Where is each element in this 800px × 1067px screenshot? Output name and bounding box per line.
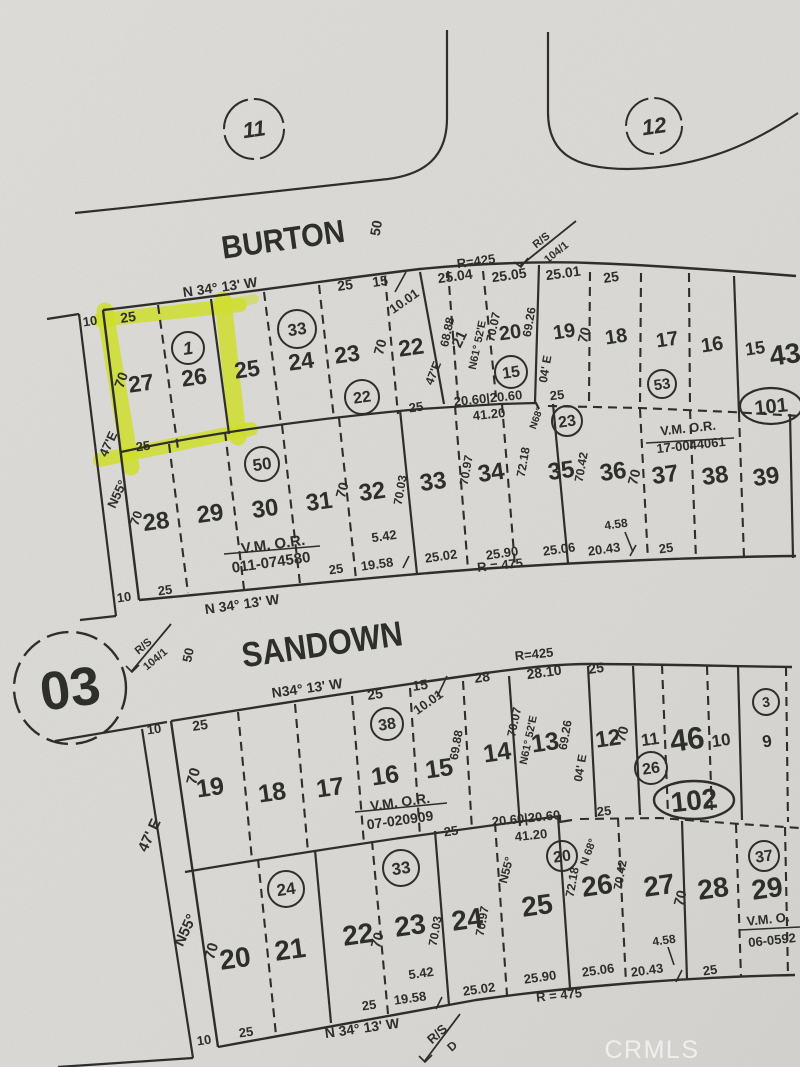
svg-text:37: 37	[650, 460, 680, 490]
svg-text:50: 50	[367, 219, 385, 237]
svg-text:43: 43	[767, 337, 800, 372]
svg-text:25: 25	[596, 803, 612, 819]
svg-text:23: 23	[557, 412, 577, 431]
svg-text:14: 14	[481, 737, 513, 769]
svg-text:22: 22	[397, 332, 426, 361]
svg-text:15: 15	[744, 337, 767, 360]
svg-text:10: 10	[710, 730, 731, 751]
svg-text:25: 25	[443, 823, 459, 840]
svg-text:17: 17	[314, 772, 345, 804]
svg-text:17: 17	[655, 328, 680, 353]
svg-text:32: 32	[357, 477, 387, 507]
svg-text:18: 18	[604, 325, 629, 350]
svg-text:39: 39	[751, 462, 781, 492]
svg-text:50: 50	[251, 454, 272, 475]
svg-text:25: 25	[328, 561, 344, 578]
svg-text:25: 25	[238, 1024, 254, 1041]
svg-text:33: 33	[286, 319, 307, 340]
svg-text:25: 25	[157, 582, 173, 599]
svg-text:31: 31	[304, 487, 334, 517]
svg-text:20: 20	[217, 941, 252, 976]
svg-text:25: 25	[336, 276, 354, 294]
svg-text:16: 16	[700, 333, 725, 358]
svg-text:37: 37	[754, 847, 774, 866]
svg-text:38: 38	[377, 715, 397, 734]
svg-text:10: 10	[116, 589, 132, 606]
svg-text:10: 10	[82, 313, 98, 330]
svg-text:22: 22	[352, 388, 372, 407]
svg-text:16: 16	[369, 760, 400, 792]
svg-text:15: 15	[411, 676, 429, 694]
svg-text:25: 25	[587, 659, 605, 677]
svg-text:25: 25	[191, 716, 209, 734]
svg-text:53: 53	[653, 375, 672, 394]
svg-text:34: 34	[476, 458, 507, 489]
svg-text:11: 11	[640, 729, 660, 750]
svg-text:102: 102	[669, 782, 719, 818]
svg-text:26: 26	[579, 868, 614, 903]
svg-text:23: 23	[392, 908, 427, 943]
svg-text:33: 33	[418, 467, 448, 497]
svg-text:18: 18	[256, 777, 288, 809]
svg-text:11: 11	[241, 115, 267, 143]
svg-text:15: 15	[501, 363, 521, 382]
svg-text:27: 27	[127, 368, 156, 397]
svg-text:24: 24	[275, 879, 297, 901]
svg-text:CRMLS: CRMLS	[604, 1036, 699, 1064]
svg-text:28: 28	[473, 668, 491, 686]
svg-text:25: 25	[119, 308, 137, 326]
svg-text:23: 23	[333, 339, 362, 368]
svg-text:38: 38	[700, 461, 730, 491]
svg-text:26: 26	[180, 362, 209, 391]
svg-text:21: 21	[272, 932, 307, 967]
svg-text:28: 28	[695, 871, 730, 906]
svg-text:25: 25	[135, 438, 151, 455]
svg-text:25: 25	[549, 387, 565, 403]
svg-text:25: 25	[519, 888, 554, 923]
svg-text:25: 25	[602, 268, 620, 286]
svg-text:26: 26	[641, 759, 661, 778]
svg-text:46: 46	[668, 720, 707, 759]
svg-text:25: 25	[361, 997, 377, 1014]
svg-text:25: 25	[408, 399, 424, 416]
svg-text:12: 12	[640, 112, 668, 140]
svg-text:30: 30	[250, 494, 280, 524]
svg-text:25: 25	[366, 685, 384, 703]
svg-text:25: 25	[702, 962, 718, 979]
svg-text:15: 15	[371, 272, 389, 290]
svg-text:20: 20	[498, 321, 523, 346]
svg-text:10: 10	[196, 1032, 212, 1049]
svg-text:20: 20	[552, 847, 572, 866]
svg-text:10: 10	[146, 721, 162, 738]
svg-text:03: 03	[36, 655, 104, 723]
svg-text:50: 50	[179, 646, 197, 663]
svg-text:28: 28	[141, 507, 171, 537]
svg-text:24: 24	[287, 346, 316, 375]
svg-text:33: 33	[390, 858, 411, 879]
svg-text:25: 25	[658, 540, 674, 557]
svg-text:29: 29	[749, 871, 784, 906]
svg-text:29: 29	[195, 499, 225, 529]
svg-text:19: 19	[552, 320, 577, 345]
svg-text:25: 25	[233, 354, 262, 383]
svg-text:101: 101	[753, 394, 788, 419]
